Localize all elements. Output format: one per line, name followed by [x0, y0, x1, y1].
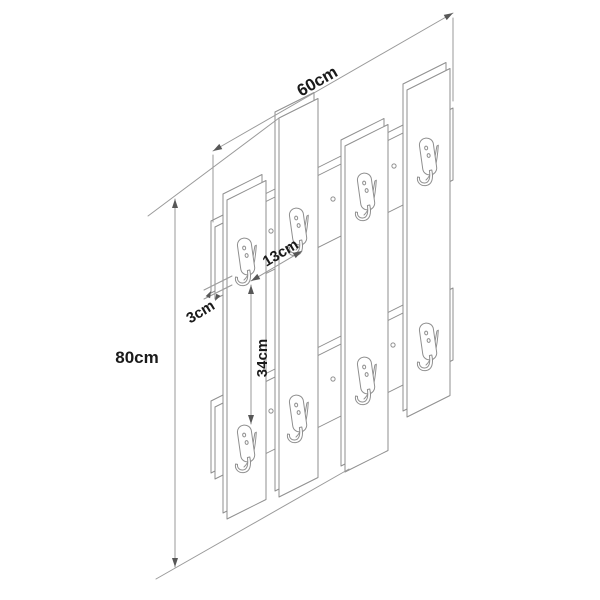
screw-icon [331, 377, 335, 381]
screw-icon [269, 229, 273, 233]
screw-icon [331, 197, 335, 201]
width-label: 60cm [294, 62, 341, 100]
arrowhead-icon [213, 144, 222, 151]
thickness-label: 3cm [183, 297, 217, 327]
arrowhead-icon [172, 558, 178, 567]
arrowhead-icon [444, 13, 453, 20]
hook-row-gap-label: 34cm [254, 339, 271, 377]
screw-icon [392, 164, 396, 168]
screw-icon [269, 409, 273, 413]
height-label: 80cm [115, 348, 158, 367]
drawing-canvas: 60cm 80cm 13cm 3cm 34cm [0, 0, 600, 600]
coat-rack-dimension-drawing: 60cm 80cm 13cm 3cm 34cm [0, 0, 600, 600]
slat-3 [341, 119, 388, 473]
arrowhead-icon [172, 199, 178, 208]
screw-icon [391, 343, 395, 347]
